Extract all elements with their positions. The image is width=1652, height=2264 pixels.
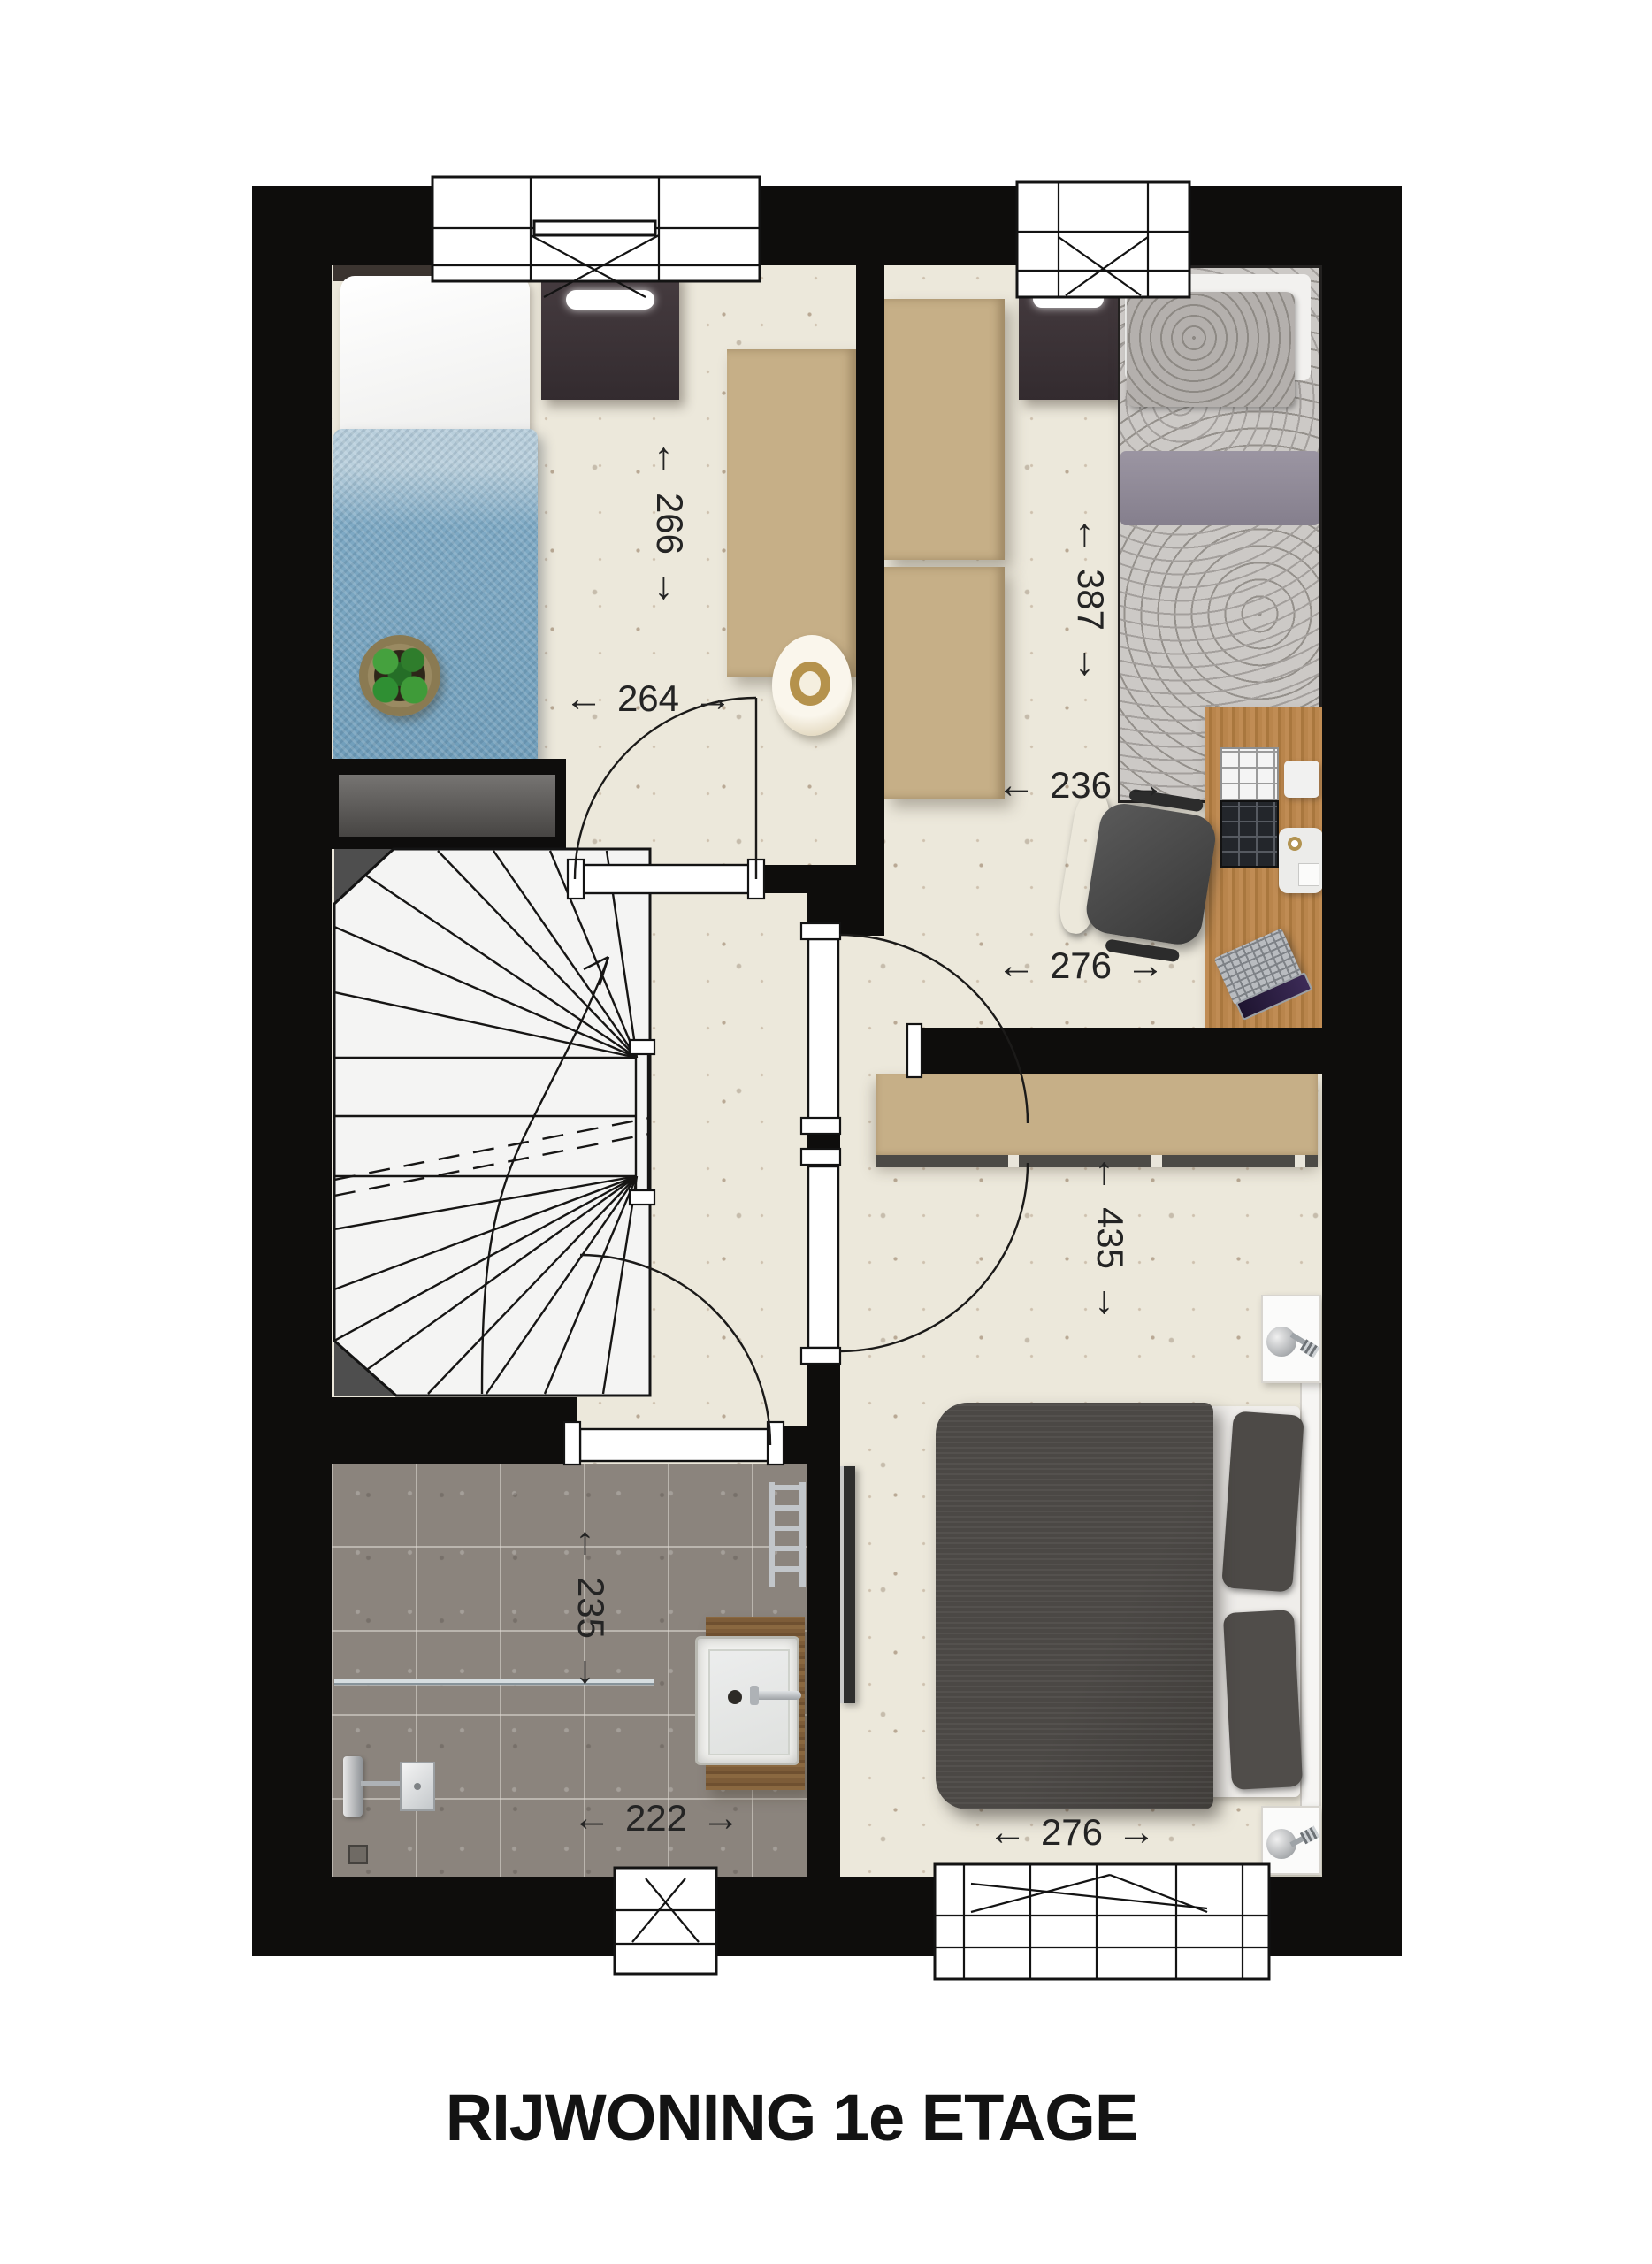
- arrow-left-icon: ←: [564, 677, 603, 721]
- arrow-left-icon: ←: [997, 763, 1036, 807]
- floorplan-page: ← 266 → ← 264 → ← 387 → ← 236 → ← 276 → …: [0, 0, 1652, 2264]
- floorplan-title: RIJWONING 1e ETAGE: [172, 2080, 1411, 2155]
- arrow-left-icon: ←: [572, 1796, 611, 1840]
- dim-bathroom-depth: ← 235 →: [570, 1511, 612, 1705]
- dim-value: 235: [570, 1577, 612, 1639]
- arrow-left-icon: ←: [569, 1524, 613, 1563]
- linework-overlay: [0, 0, 1652, 2264]
- dim-bedroom2-depth: ← 387 →: [1069, 502, 1112, 697]
- dim-value: 266: [648, 493, 691, 555]
- dim-value: 387: [1069, 569, 1112, 631]
- arrow-right-icon: →: [1126, 944, 1165, 988]
- dim-bedroom1-depth: ← 266 →: [648, 426, 691, 621]
- dim-bedroom2-width-upper: ← 236 →: [983, 764, 1178, 807]
- dim-value: 236: [1050, 764, 1112, 807]
- door-bedroom1: [568, 698, 764, 899]
- window-bathroom: [615, 1868, 716, 1974]
- arrow-left-icon: ←: [988, 1810, 1027, 1855]
- arrow-right-icon: →: [569, 1653, 613, 1692]
- dim-value: 276: [1041, 1811, 1103, 1854]
- staircase: [334, 849, 654, 1396]
- arrow-right-icon: →: [1126, 763, 1165, 807]
- window-bedroom1: [432, 177, 760, 297]
- arrow-right-icon: →: [693, 677, 732, 721]
- dim-value: 222: [625, 1797, 687, 1839]
- arrow-left-icon: ←: [997, 944, 1036, 988]
- arrow-left-icon: ←: [647, 440, 692, 478]
- dim-value: 276: [1050, 945, 1112, 987]
- dim-value: 264: [617, 677, 679, 720]
- arrow-right-icon: →: [701, 1796, 740, 1840]
- arrow-left-icon: ←: [1068, 516, 1113, 555]
- arrow-right-icon: →: [647, 569, 692, 608]
- wall-end-jamb: [907, 1024, 922, 1077]
- arrow-right-icon: →: [1117, 1810, 1156, 1855]
- arrow-right-icon: →: [1068, 645, 1113, 684]
- arrow-right-icon: →: [1088, 1283, 1132, 1322]
- dim-value: 435: [1089, 1207, 1131, 1269]
- dim-bedroom3-width: ← 276 →: [975, 1811, 1169, 1854]
- window-bedroom2: [1017, 182, 1189, 297]
- dim-bathroom-width: ← 222 →: [559, 1797, 753, 1839]
- dim-bedroom3-depth: ← 435 →: [1089, 1141, 1131, 1335]
- arrow-left-icon: ←: [1088, 1154, 1132, 1193]
- door-bedroom3: [801, 1149, 1028, 1364]
- window-bedroom3: [935, 1864, 1269, 1979]
- dim-bedroom2-width-lower: ← 276 →: [983, 945, 1178, 987]
- dim-bedroom1-width: ← 264 →: [551, 677, 746, 720]
